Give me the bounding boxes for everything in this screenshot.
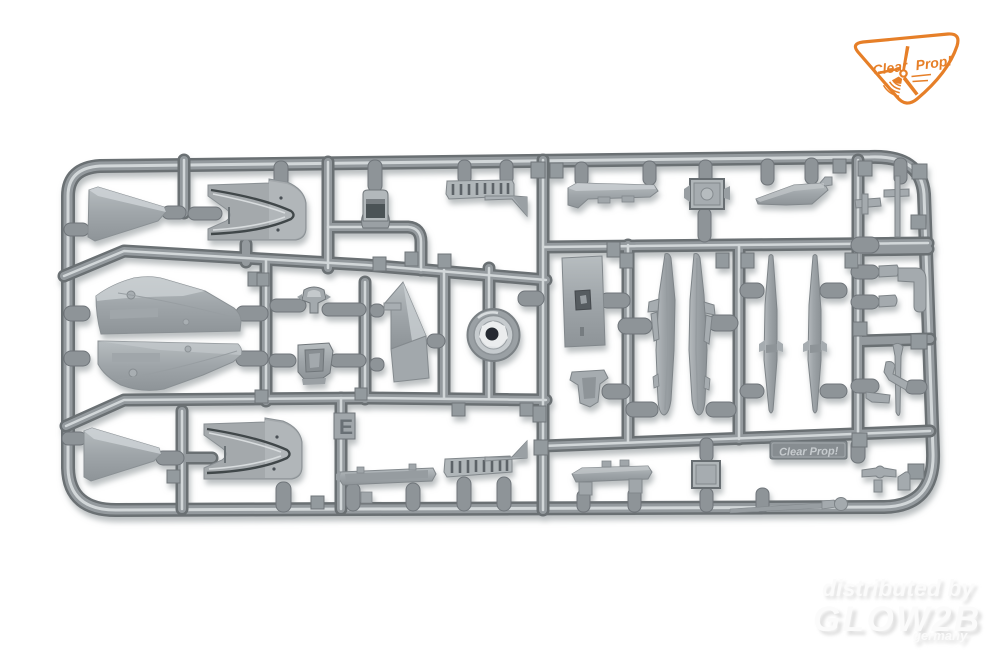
svg-text:E: E bbox=[339, 416, 353, 439]
svg-text:Prop!: Prop! bbox=[914, 52, 953, 73]
svg-text:germany: germany bbox=[912, 628, 968, 643]
svg-text:distributed by: distributed by bbox=[822, 575, 975, 601]
svg-text:Clear Prop!: Clear Prop! bbox=[779, 445, 839, 458]
